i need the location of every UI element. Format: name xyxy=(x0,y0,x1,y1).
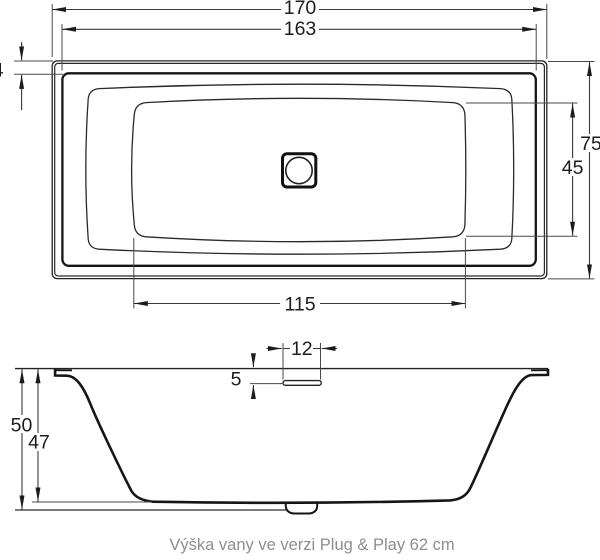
svg-text:4: 4 xyxy=(0,59,4,81)
svg-text:5: 5 xyxy=(231,368,242,390)
svg-text:163: 163 xyxy=(284,18,317,40)
svg-text:75: 75 xyxy=(580,133,600,155)
svg-text:170: 170 xyxy=(284,0,317,19)
svg-text:45: 45 xyxy=(562,157,584,179)
svg-text:Výška vany ve verzi Plug & Pla: Výška vany ve verzi Plug & Play 62 cm xyxy=(169,536,454,554)
svg-text:47: 47 xyxy=(28,432,50,454)
svg-text:12: 12 xyxy=(291,338,313,360)
svg-text:115: 115 xyxy=(284,294,315,316)
